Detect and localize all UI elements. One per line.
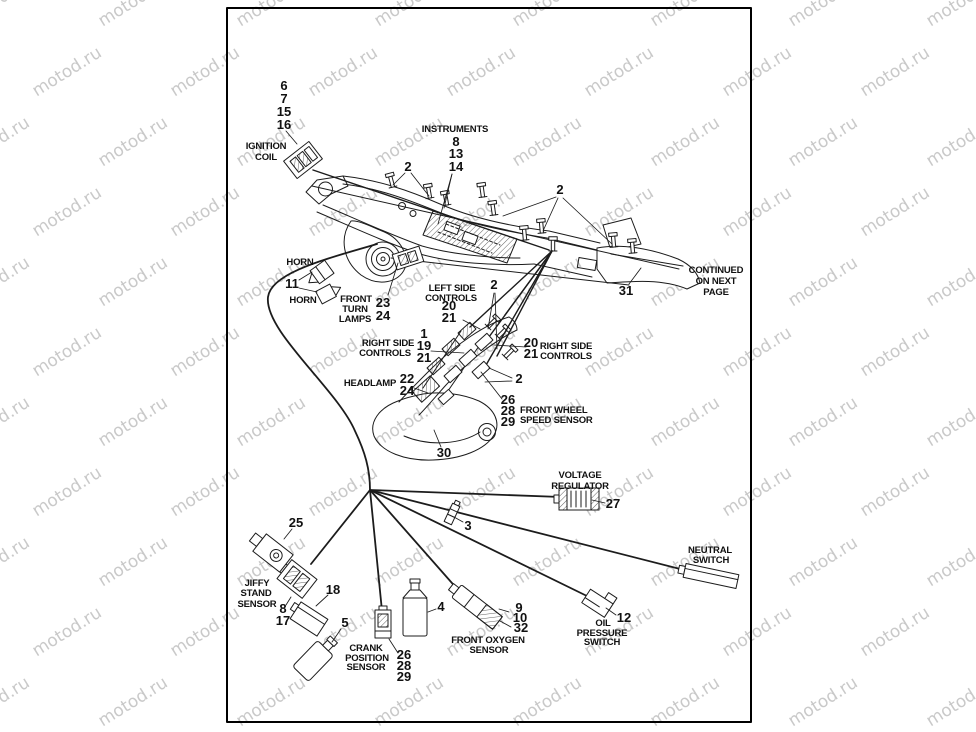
horn-label-bottom: HORN — [289, 295, 317, 306]
ignition-coil-label-2: COIL — [255, 152, 277, 163]
crank-position-sensor-part — [375, 606, 391, 638]
ignition-coil-connector — [284, 141, 323, 178]
callout-4: 4 — [437, 599, 445, 614]
callout-27: 27 — [606, 496, 620, 511]
callout-2c: 2 — [490, 277, 497, 292]
callout-32: 32 — [514, 620, 528, 635]
continued-note-3: PAGE — [703, 287, 728, 298]
callout-12: 12 — [617, 610, 631, 625]
callout-5: 5 — [341, 615, 348, 630]
bottle-4-part — [403, 579, 427, 636]
left-side-controls-label-2: CONTROLS — [425, 293, 477, 304]
jiffy-stand-sensor-label-3: SENSOR — [238, 599, 277, 610]
neutral-switch-label-2: SWITCH — [693, 555, 730, 566]
front-turn-lamps-label-3: LAMPS — [339, 314, 371, 325]
callout-17: 17 — [276, 613, 290, 628]
main-harness-branches — [311, 490, 688, 611]
frame-artwork — [268, 170, 700, 490]
front-wheel-speed-sensor-label-2: SPEED SENSOR — [520, 415, 593, 426]
callout-25: 25 — [289, 515, 303, 530]
voltage-regulator-label-1: VOLTAGE — [558, 470, 601, 481]
clamp-18-part — [286, 599, 328, 636]
callout-3: 3 — [464, 518, 471, 533]
callout-2a: 2 — [404, 159, 411, 174]
callout-21rr: 21 — [524, 346, 538, 361]
oil-pressure-switch-label-3: SWITCH — [584, 637, 621, 648]
callout-2d: 2 — [515, 371, 522, 386]
diagram-artwork: 6 7 15 16 8 13 14 2 2 2 2 11 23 24 20 21… — [0, 0, 976, 732]
callout-29c: 29 — [397, 669, 411, 684]
front-oxygen-sensor-part — [446, 580, 502, 629]
wiring-diagram-page: motod.rumotod.rumotod.rumotod.rumotod.ru… — [0, 0, 976, 732]
callout-18: 18 — [326, 582, 340, 597]
continued-note-1: CONTINUED — [689, 265, 744, 276]
callout-24h: 24 — [400, 383, 415, 398]
callout-21l: 21 — [442, 310, 456, 325]
instruments-label: INSTRUMENTS — [422, 124, 488, 135]
callout-24: 24 — [376, 308, 391, 323]
callout-2b: 2 — [556, 182, 563, 197]
jiffy-stand-sensor-label-2: STAND — [240, 588, 271, 599]
horn-label-top: HORN — [286, 257, 314, 268]
crank-position-sensor-label-3: SENSOR — [347, 662, 386, 673]
right-side-controls-left-label-2: CONTROLS — [359, 348, 411, 359]
callout-14: 14 — [449, 159, 464, 174]
leader-lines — [284, 131, 641, 653]
headlamp-label: HEADLAMP — [344, 378, 397, 389]
callout-16: 16 — [277, 117, 291, 132]
part-labels-left-aligned: FRONT WHEEL SPEED SENSOR — [520, 405, 593, 426]
front-oxygen-sensor-label-2: SENSOR — [470, 645, 509, 656]
right-side-controls-right-label-2: CONTROLS — [540, 351, 592, 362]
callout-11: 11 — [285, 276, 299, 291]
callout-21r: 21 — [417, 350, 431, 365]
callout-30: 30 — [437, 445, 451, 460]
callout-31: 31 — [619, 283, 633, 298]
continued-note-2: ON NEXT — [696, 276, 737, 287]
callout-29w: 29 — [501, 414, 515, 429]
voltage-regulator-label-2: REGULATOR — [551, 481, 609, 492]
ignition-coil-label-1: IGNITION — [246, 141, 287, 152]
neutral-switch-part — [677, 562, 739, 588]
